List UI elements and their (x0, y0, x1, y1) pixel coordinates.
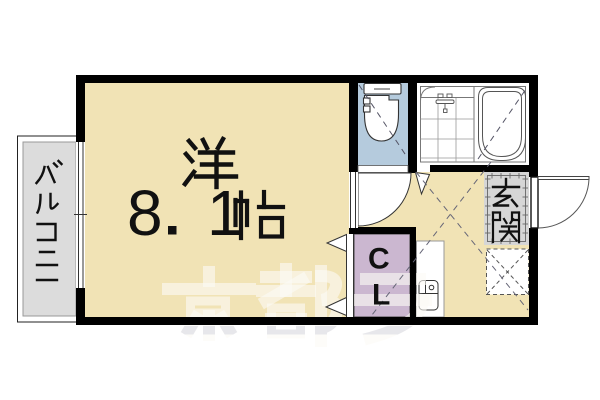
svg-text:1: 1 (207, 177, 243, 249)
svg-text:C: C (368, 243, 390, 276)
svg-text:L: L (372, 279, 390, 312)
svg-text:8: 8 (127, 177, 163, 249)
